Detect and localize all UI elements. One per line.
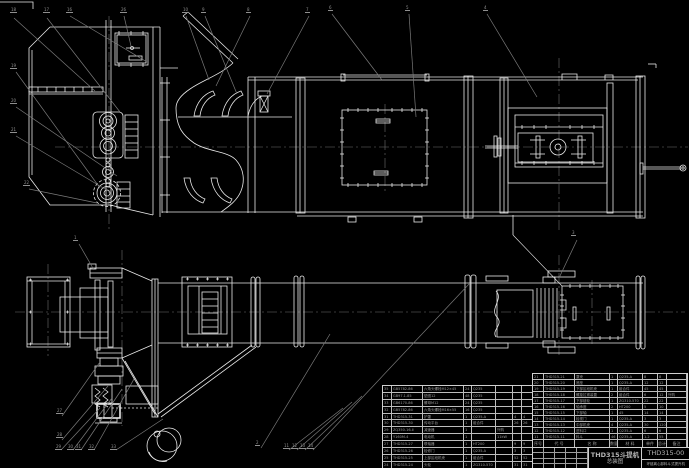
bom-seq: 31: [383, 414, 392, 421]
bom-name: 垫圈12: [423, 393, 464, 400]
bom-qty: 1: [464, 462, 472, 468]
bom-remark: 11kW: [496, 434, 513, 441]
bom-seq: 27: [383, 441, 392, 448]
chain-sprocket-assembly: [93, 20, 138, 212]
bom-code: GB5782-86: [392, 407, 423, 414]
bom-seq: 32: [383, 407, 392, 414]
bom-table-left: 35 GB5782-86 六角头螺栓M12×45 24 Q235 34 GB97…: [382, 385, 534, 468]
bom-qty: 48: [464, 393, 472, 400]
bom-unit-weight: 26: [513, 420, 522, 427]
balloon-label: 1: [73, 236, 78, 241]
bom-code: THD315-25: [392, 455, 423, 462]
balloon-label: 7: [305, 8, 310, 13]
bom-unit-weight: [513, 386, 522, 393]
bom-unit-weight: [513, 434, 522, 441]
bom-unit-weight: 31: [513, 462, 522, 468]
bom-material: [472, 427, 496, 434]
bom-material: Q235-A: [472, 414, 496, 421]
balloon-label: 9: [201, 8, 206, 13]
balloon-label: 10: [182, 8, 189, 13]
balloon-label: 17: [43, 8, 50, 13]
bom-unit-weight: 3: [513, 448, 522, 455]
bom-remark: [496, 420, 513, 427]
bom-material: Q235-A: [472, 448, 496, 455]
drawing-number-cell: THD315-00 环链离心卸料斗式提升机: [642, 448, 689, 468]
signature-grid: [533, 448, 588, 468]
bom-unit-weight: 9: [513, 441, 522, 448]
bom-row: 30 THD315-30 传动平台 1 组合件 26 26: [383, 420, 533, 427]
bom-qty: 24: [464, 386, 472, 393]
bom-seq: 29: [383, 427, 392, 434]
balloon-label: 3: [571, 231, 576, 236]
discharge-chute: [176, 12, 292, 212]
bom-name: 螺母M12: [423, 400, 464, 407]
balloon-label: 33: [110, 445, 117, 450]
bom-material: Q235: [472, 386, 496, 393]
drawing-subtitle: 环链离心卸料斗式提升机: [642, 460, 689, 468]
bom-row: 26 THD315-26 检修门 1 Q235-A 3 3: [383, 448, 533, 455]
head-flange-plan: [27, 277, 113, 350]
horizontal-casing: [162, 74, 645, 222]
bom-seq: 25: [383, 455, 392, 462]
bom-code: ZQ350-16-Ⅱ: [392, 427, 423, 434]
bom-name: 传动平台: [423, 420, 464, 427]
bom-unit-weight: [513, 407, 522, 414]
bom-remark: [496, 393, 513, 400]
bom-qty: 1: [464, 427, 472, 434]
bom-seq: 33: [383, 400, 392, 407]
bom-table-right: 21 THD315-21 罩壳 1 Q235-A 8 8 20 THD315-2…: [532, 373, 688, 449]
bom-name: 头轮: [423, 462, 464, 468]
head-access-door: [115, 31, 148, 67]
bom-code: THD315-30: [392, 420, 423, 427]
bom-material: Q235: [472, 400, 496, 407]
bom-seq: 35: [383, 386, 392, 393]
bucket: [194, 91, 215, 116]
bom-qty: 24: [464, 400, 472, 407]
balloon-label: 5: [405, 6, 410, 11]
bom-name: 检修门: [423, 448, 464, 455]
bom-remark: [496, 407, 513, 414]
bom-unit-weight: [513, 427, 522, 434]
bom-seq: 26: [383, 448, 392, 455]
bom-code: GB97.1-85: [392, 393, 423, 400]
bom-remark: [496, 455, 513, 462]
bom-unit-weight: 52: [513, 455, 522, 462]
balloon-label: 18: [10, 8, 17, 13]
drive-unit: [92, 345, 256, 423]
balloon-label: 20: [10, 99, 17, 104]
top-view: [29, 12, 688, 286]
bom-remark: [496, 414, 513, 421]
balloon-label: 22: [23, 181, 30, 186]
sheet-type: 总装图: [607, 459, 624, 465]
bom-code: THD315-24: [392, 462, 423, 468]
bom-qty: 1: [464, 448, 472, 455]
balloon-label: 13: [299, 444, 306, 449]
takeup-section-top-view: [485, 64, 686, 286]
bom-remark: [496, 462, 513, 468]
drawing-title-cell: THD315斗提机 总装图: [588, 448, 641, 468]
bom-qty: 1: [464, 455, 472, 462]
crescent-watermark: [147, 428, 181, 462]
bom-row: 28 Y160M-4 电动机 1 11kW: [383, 434, 533, 441]
bom-name: 六角头螺栓M12×45: [423, 386, 464, 393]
bom-name: 上部区段机壳: [423, 455, 464, 462]
balloon-label: 29: [55, 445, 62, 450]
balloon-label: 16: [66, 8, 73, 13]
bom-row: 33 GB6170-86 螺母M12 24 Q235: [383, 400, 533, 407]
title-block: THD315斗提机 总装图 THD315-00 环链离心卸料斗式提升机: [532, 447, 689, 468]
bom-unit-weight: 4: [513, 414, 522, 421]
transition-plan: [88, 264, 158, 417]
bom-code: THD315-31: [392, 414, 423, 421]
bom-seq: 28: [383, 434, 392, 441]
bom-material: Q235: [472, 393, 496, 400]
bom-remark: [496, 386, 513, 393]
bom-name: 减速器: [423, 427, 464, 434]
balloon-label: 11: [283, 444, 290, 449]
cad-drawing-sheet: 18 17 16 26 10 9 8 7 6 5 4 19 20 21 22: [0, 0, 689, 468]
balloon-label: 21: [10, 128, 17, 133]
bom-material: [472, 434, 496, 441]
bom-row: 25 THD315-25 上部区段机壳 1 组合件 52 52: [383, 455, 533, 462]
bom-name: 电动机: [423, 434, 464, 441]
drawing-number: THD315-00: [642, 448, 689, 460]
bom-remark: [496, 400, 513, 407]
bom-seq: 30: [383, 420, 392, 427]
bom-name: 联轴器: [423, 441, 464, 448]
bom-name: 六角头螺栓M16×55: [423, 407, 464, 414]
balloon-label: 26: [120, 8, 127, 13]
balloon-label: 14: [307, 444, 314, 449]
bom-unit-weight: [513, 400, 522, 407]
balloon-label: 8: [246, 8, 251, 13]
bom-name: 护罩: [423, 414, 464, 421]
bom-remark: [496, 448, 513, 455]
balloon-label: 28: [56, 433, 63, 438]
inspection-door-top-view: [340, 108, 429, 187]
bom-code: THD315-27: [392, 441, 423, 448]
bom-qty: 1: [464, 434, 472, 441]
bom-remark: [496, 441, 513, 448]
bom-row: 32 GB5782-86 六角头螺栓M16×55 16 Q235: [383, 407, 533, 414]
balloon-label: 4: [483, 6, 488, 11]
bom-qty: 1: [464, 441, 472, 448]
bom-material: ZG310-570: [472, 462, 496, 468]
bom-seq: 24: [383, 462, 392, 468]
bom-code: THD315-26: [392, 448, 423, 455]
bom-material: 组合件: [472, 455, 496, 462]
balloon-label: 31: [75, 445, 82, 450]
bom-seq: 34: [383, 393, 392, 400]
bucket: [222, 91, 243, 116]
bom-material: Q235: [472, 407, 496, 414]
bucket: [184, 178, 205, 203]
bom-row: 35 GB5782-86 六角头螺栓M12×45 24 Q235: [383, 386, 533, 393]
bom-remark: 外购: [496, 427, 513, 434]
bom-code: GB5782-86: [392, 386, 423, 393]
bom-right-rows: 21 THD315-21 罩壳 1 Q235-A 8 8 20 THD315-2…: [533, 374, 687, 440]
bom-row: 34 GB97.1-85 垫圈12 48 Q235: [383, 393, 533, 400]
bom-qty: 16: [464, 407, 472, 414]
bom-row: 27 THD315-27 联轴器 1 HT200 9 9: [383, 441, 533, 448]
bom-row: 29 ZQ350-16-Ⅱ 减速器 1 外购: [383, 427, 533, 434]
balloon-label: 30: [67, 445, 74, 450]
balloon-label: 6: [328, 6, 333, 11]
bom-row: 24 THD315-24 头轮 1 ZG310-570 31 31: [383, 462, 533, 468]
bom-material: 组合件: [472, 420, 496, 427]
bucket: [211, 178, 232, 203]
bom-qty: 1: [464, 414, 472, 421]
balloon-label: 2: [255, 441, 260, 446]
bom-qty: 1: [464, 420, 472, 427]
balloon-label: 19: [10, 64, 17, 69]
bom-code: Y160M-4: [392, 434, 423, 441]
bom-row: 31 THD315-31 护罩 1 Q235-A 4 4: [383, 414, 533, 421]
balloon-label: 32: [88, 445, 95, 450]
balloon-label: 12: [291, 444, 298, 449]
bom-code: GB6170-86: [392, 400, 423, 407]
balloon-label: 27: [56, 409, 63, 414]
bolt-fitting: [258, 91, 270, 112]
bom-unit-weight: [513, 393, 522, 400]
product-name: THD315斗提机: [591, 452, 639, 459]
bom-material: HT200: [472, 441, 496, 448]
